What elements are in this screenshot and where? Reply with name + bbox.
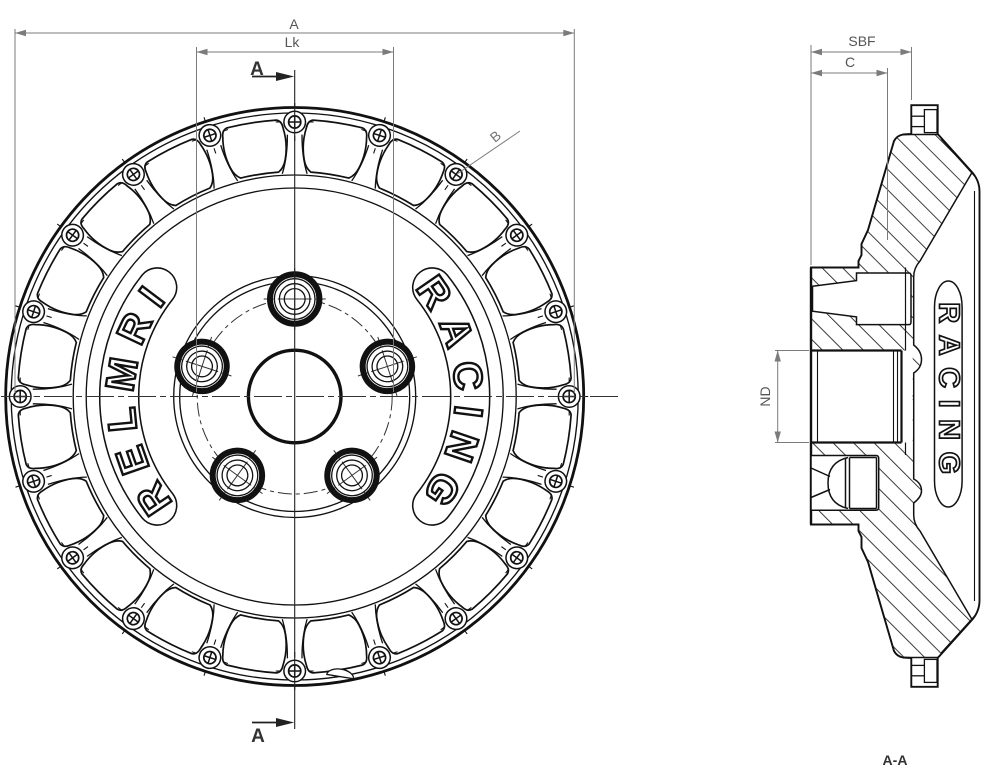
svg-text:ND: ND [757,386,773,406]
svg-text:A: A [250,59,264,80]
svg-text:RACING: RACING [932,302,964,485]
svg-text:A: A [251,726,265,747]
svg-text:SBF: SBF [848,33,875,49]
svg-text:A-A: A-A [883,752,908,768]
svg-text:Lk: Lk [285,34,301,50]
svg-text:C: C [845,54,855,70]
svg-text:A: A [289,16,299,32]
